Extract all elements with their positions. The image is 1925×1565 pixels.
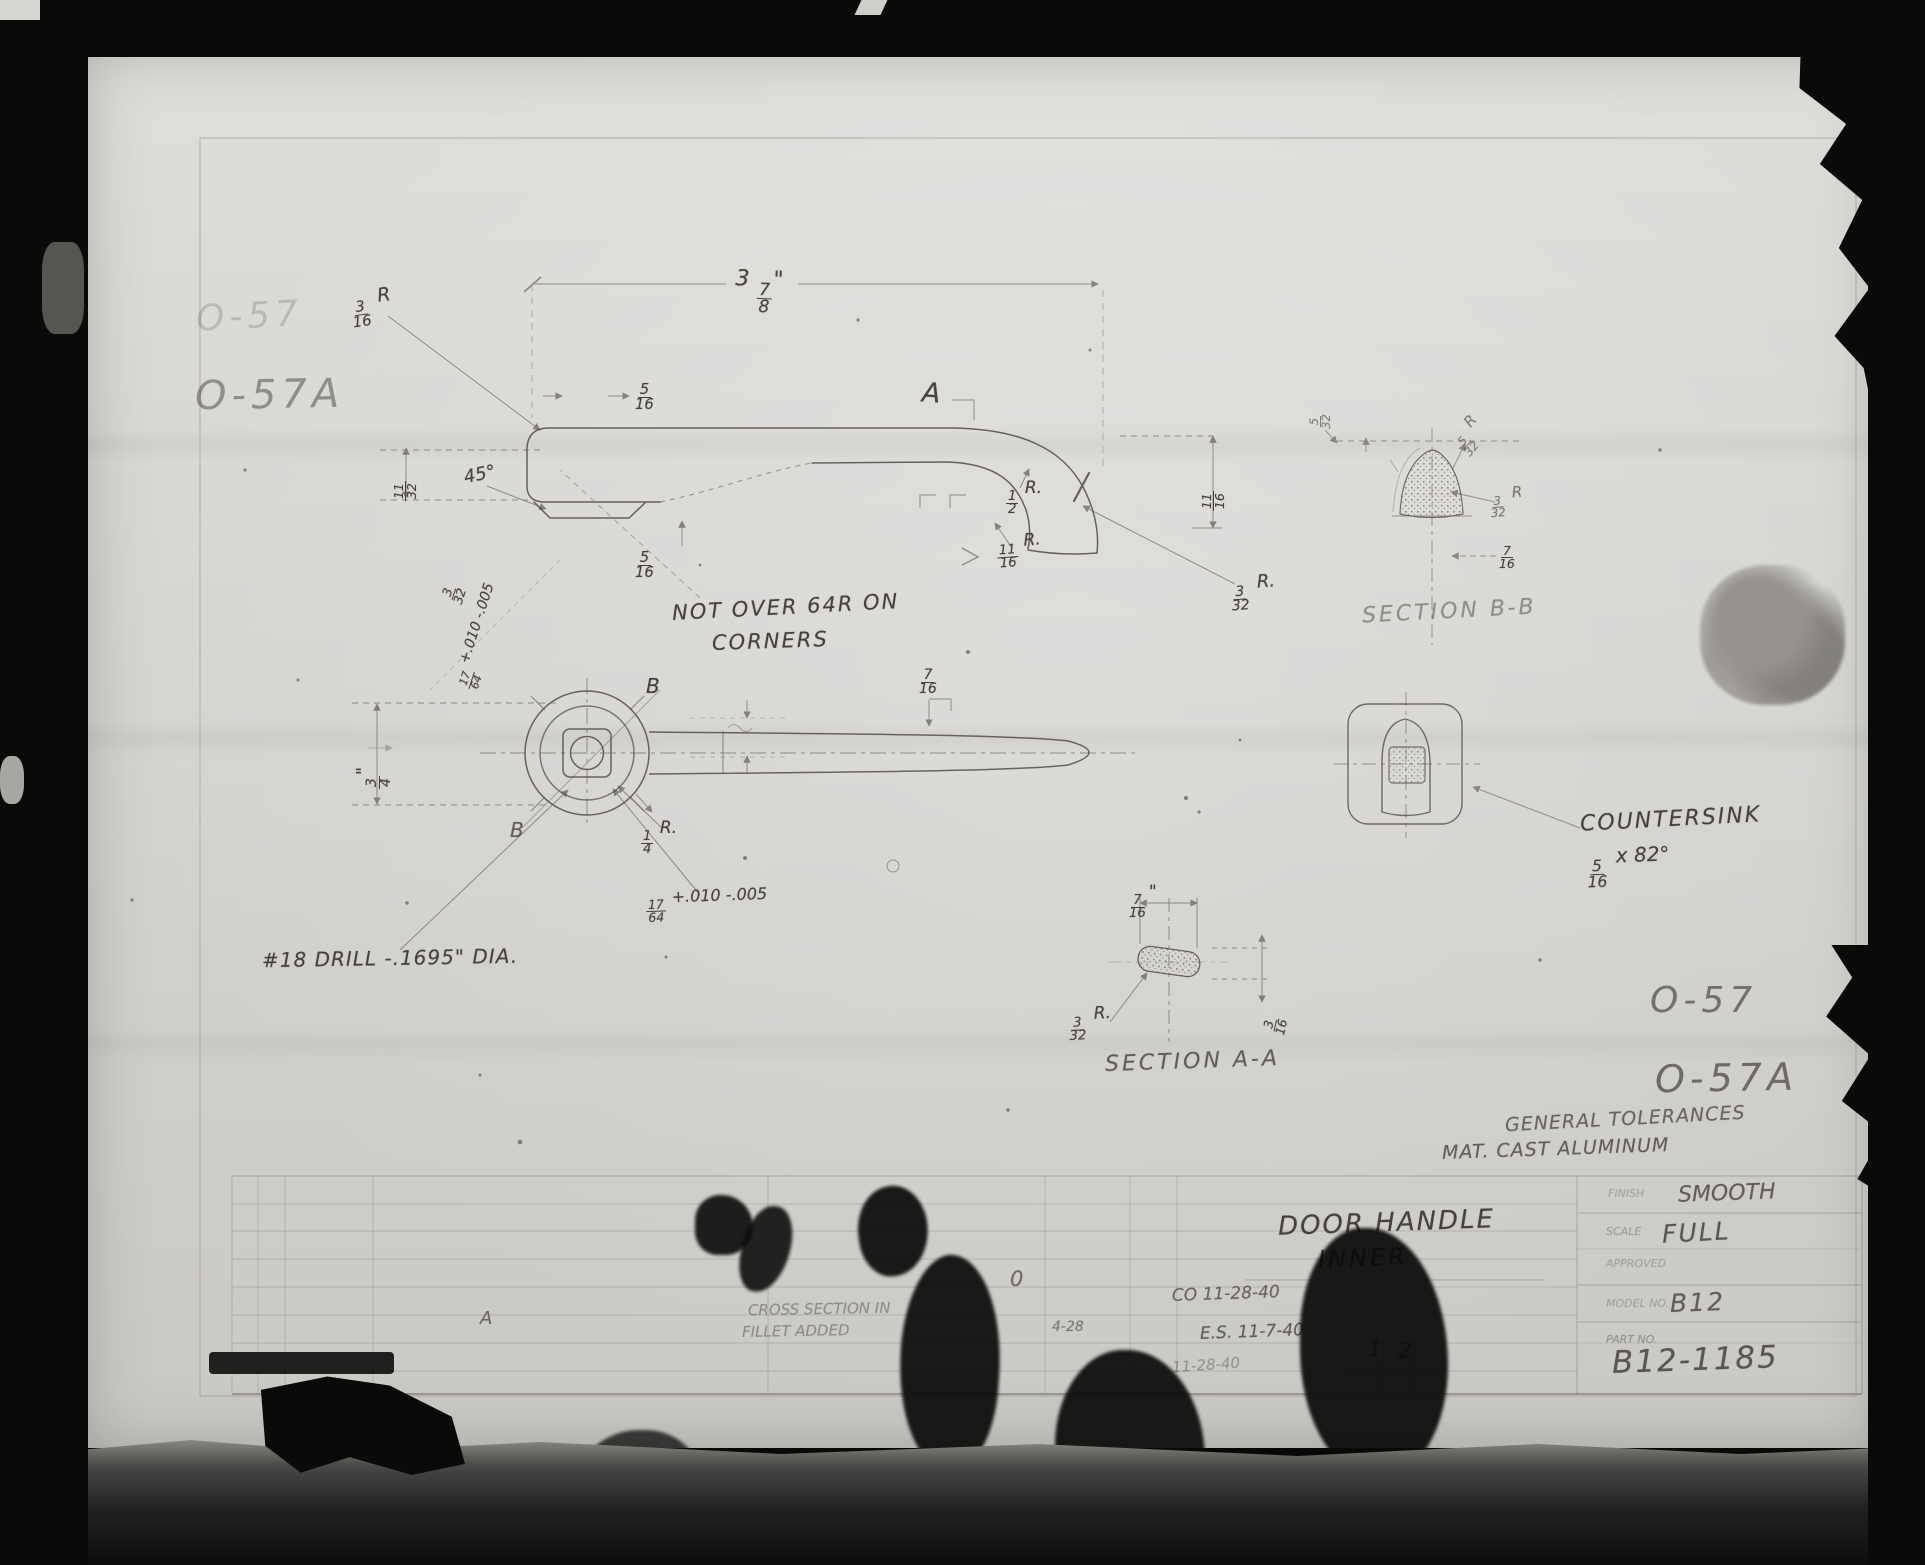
rev-date: 4-28 xyxy=(1052,1320,1084,1335)
note-corners-line2: CORNERS xyxy=(712,628,829,654)
label-approved: APPROVED xyxy=(1606,1258,1666,1270)
bb-dim-depth: 532 xyxy=(1300,411,1332,432)
stamp-o57-faded: O-57 xyxy=(195,293,304,340)
bb-dim-side-radius: 332 R xyxy=(1486,484,1525,519)
left-strip-gray-patch xyxy=(42,242,84,334)
rev-note-1: CROSS SECTION IN xyxy=(748,1301,891,1319)
dim-boss-height: 34" xyxy=(355,767,394,790)
dim-hook-inner-radius: 12 R. xyxy=(1005,480,1042,517)
date-entry-2: E.S. 11-7-40 xyxy=(1200,1322,1305,1343)
value-model: B12 xyxy=(1670,1289,1726,1317)
section-b-marker-upper: B xyxy=(646,676,660,697)
top-black-bar xyxy=(0,0,1925,57)
countersink-note-line2: 516 x 82° xyxy=(1583,844,1670,890)
dim-hook-tip-radius: 332 R. xyxy=(1227,572,1277,614)
value-part-no: B12-1185 xyxy=(1611,1341,1779,1379)
dim-notch-width: 516 xyxy=(632,540,657,581)
rev-marker: A xyxy=(480,1310,492,1329)
section-aa-title: SECTION A-A xyxy=(1105,1047,1281,1076)
label-model: MODEL NO. xyxy=(1606,1298,1669,1310)
value-finish: SMOOTH xyxy=(1678,1180,1776,1206)
label-scale: SCALE xyxy=(1606,1226,1641,1238)
dim-overall-length: 3 78" xyxy=(734,267,784,316)
dim-corner-radius: 316 R xyxy=(345,285,394,331)
section-b-marker-lower: B xyxy=(510,820,524,841)
note-drill: #18 DRILL -.1695" DIA. xyxy=(262,946,518,971)
rev-note-2: FILLET ADDED xyxy=(742,1323,850,1341)
dim-shaft-width: 716 xyxy=(916,658,940,697)
gray-stain xyxy=(1700,565,1845,705)
date-entry-1: CO 11-28-40 xyxy=(1172,1284,1280,1306)
dim-square-hole: 1764 +.010 -.005 xyxy=(644,886,768,924)
stamp-o57a: O-57A xyxy=(195,371,345,420)
aa-dim-radius: 332 R. xyxy=(1065,1005,1112,1044)
dim-fillet-radius: 14 R. xyxy=(640,820,677,857)
scanned-drawing-sheet: O-57 O-57A O-57 O-57A 3 78" 316 R 516 A … xyxy=(0,0,1925,1565)
dim-boss-width: 516 xyxy=(632,372,657,413)
bb-dim-width: 716 xyxy=(1496,536,1518,570)
stamp-o57-right: O-57 xyxy=(1650,980,1757,1021)
label-finish: FINISH xyxy=(1608,1188,1644,1200)
aa-dim-width: 716" xyxy=(1126,884,1157,921)
left-strip-white-speck xyxy=(0,756,24,804)
value-scale: FULL xyxy=(1661,1218,1731,1248)
stamp-o57a-right: O-57A xyxy=(1655,1055,1799,1101)
dim-left-height: 1132 xyxy=(384,480,418,502)
section-a-marker: A xyxy=(921,379,941,409)
dim-hook-drop: 1116 xyxy=(1192,490,1226,512)
dim-hook-mid-radius: 1116 R. xyxy=(995,531,1043,571)
stray-zero-mark: 0 xyxy=(1010,1268,1023,1290)
